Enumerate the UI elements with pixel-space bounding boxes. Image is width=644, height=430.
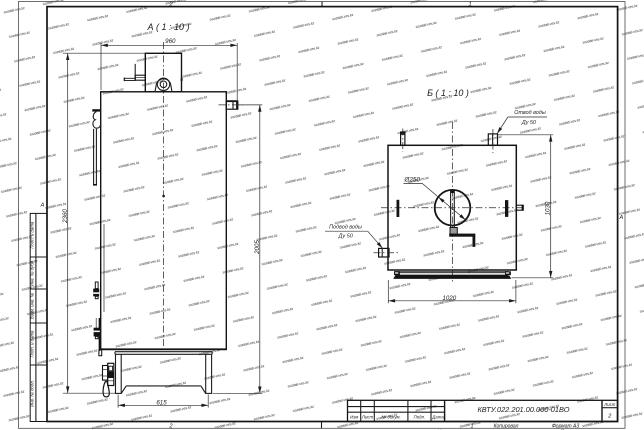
svg-text:Ø250: Ø250 — [403, 176, 420, 183]
svg-text:А: А — [618, 215, 623, 221]
svg-text:960: 960 — [165, 38, 176, 45]
svg-text:1020: 1020 — [442, 295, 456, 302]
svg-text:Подп. и дата: Подп. и дата — [30, 330, 35, 358]
svg-text:Подп.: Подп. — [414, 414, 426, 419]
svg-text:Отвод воды: Отвод воды — [514, 110, 546, 116]
svg-text:1: 1 — [470, 423, 473, 429]
svg-text:2360: 2360 — [62, 209, 69, 224]
svg-text:Подвод воды: Подвод воды — [329, 224, 362, 230]
svg-text:Инв. № подл.: Инв. № подл. — [30, 380, 35, 407]
svg-text:Б ( 1 : 10 ): Б ( 1 : 10 ) — [427, 88, 469, 98]
svg-text:2: 2 — [168, 423, 172, 429]
svg-text:Копировал: Копировал — [494, 424, 519, 430]
svg-text:Инв. № дубл.: Инв. № дубл. — [30, 260, 35, 286]
svg-text:Взам. инв. №: Взам. инв. № — [30, 292, 35, 319]
svg-text:Ду 50: Ду 50 — [338, 234, 353, 240]
svg-text:№ докум.: № докум. — [381, 414, 400, 419]
svg-text:2005: 2005 — [254, 240, 261, 255]
svg-text:1030: 1030 — [545, 201, 552, 215]
svg-text:Подп. и дата: Подп. и дата — [30, 221, 35, 249]
svg-text:А: А — [40, 203, 45, 209]
svg-text:А ( 1 : 10 ): А ( 1 : 10 ) — [146, 22, 189, 32]
svg-text:Ду 50: Ду 50 — [521, 120, 536, 126]
svg-text:615: 615 — [156, 400, 167, 407]
svg-text:КВТУ.022.201.00.000-01ВО: КВТУ.022.201.00.000-01ВО — [477, 405, 569, 414]
svg-text:2: 2 — [168, 2, 173, 8]
svg-text:1: 1 — [468, 2, 471, 8]
svg-text:Дата: Дата — [431, 414, 444, 419]
svg-text:Лист: Лист — [603, 402, 615, 407]
svg-text:Изм: Изм — [350, 414, 358, 419]
svg-text:Формат А3: Формат А3 — [552, 424, 580, 430]
svg-text:Лист: Лист — [361, 414, 374, 419]
